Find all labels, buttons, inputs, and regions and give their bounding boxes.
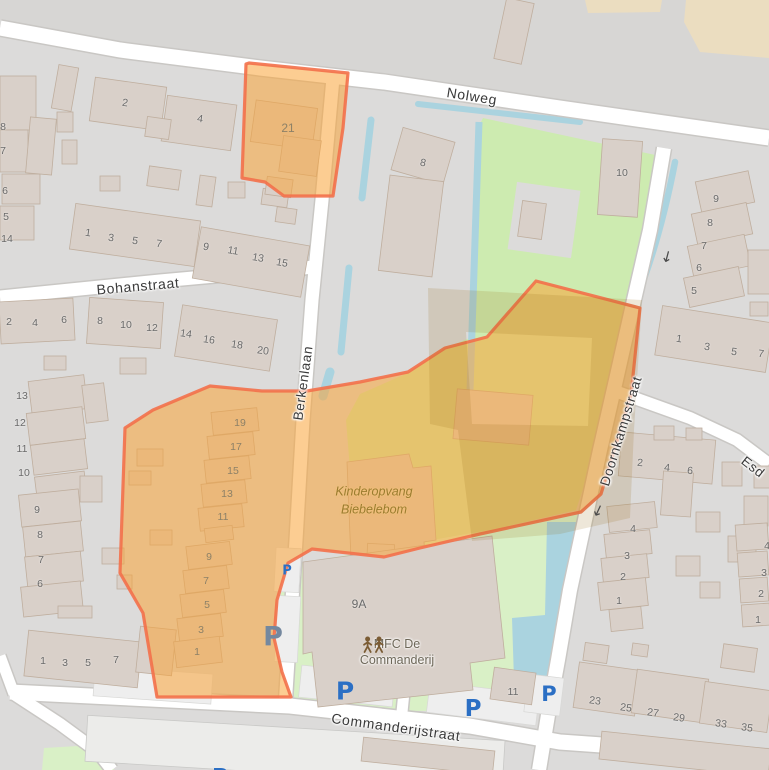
- housenumber-1: 1: [194, 646, 200, 658]
- housenumber-8: 8: [97, 315, 103, 327]
- housenumber-10: 10: [18, 467, 30, 479]
- housenumber-6: 6: [61, 314, 67, 326]
- housenumber-23: 23: [588, 694, 601, 708]
- oneway-arrow-icon: ↓: [659, 247, 676, 268]
- housenumber-4: 4: [630, 523, 636, 535]
- housenumber-1: 1: [675, 333, 682, 346]
- housenumber-6: 6: [2, 185, 8, 197]
- housenumber-11: 11: [508, 686, 519, 698]
- housenumber-15: 15: [275, 256, 289, 270]
- housenumber-8: 8: [37, 529, 43, 541]
- housenumber-5: 5: [131, 235, 138, 248]
- poi-mfc-line2: Commanderij: [360, 652, 434, 668]
- housenumber-16: 16: [202, 333, 215, 347]
- housenumber-20: 20: [256, 344, 269, 358]
- street-label-bohanstraat: Bohanstraat: [96, 274, 180, 297]
- housenumber-5: 5: [3, 211, 9, 223]
- parking-icon: P: [212, 766, 228, 770]
- housenumber-5: 5: [730, 346, 737, 359]
- housenumber-29: 29: [672, 711, 685, 725]
- housenumber-7: 7: [38, 554, 44, 566]
- poi-kinderopvang-line1: Kinderopvang: [335, 484, 412, 502]
- housenumber-2: 2: [620, 571, 626, 583]
- parking-icon: P: [282, 564, 292, 579]
- poi-kinderopvang-line2: Biebelebom: [335, 501, 412, 519]
- housenumber-12: 12: [14, 417, 26, 429]
- housenumber-4: 4: [664, 462, 671, 474]
- housenumber-3: 3: [703, 341, 710, 354]
- housenumber-14: 14: [1, 233, 13, 245]
- housenumber-3: 3: [107, 232, 114, 245]
- housenumber-1: 1: [84, 227, 91, 240]
- housenumber-3: 3: [624, 550, 630, 562]
- housenumber-8: 8: [0, 121, 6, 133]
- housenumber-1: 1: [755, 614, 761, 626]
- labels-layer: Kinderopvang Biebelebom MFC De Commander…: [0, 0, 769, 770]
- housenumber-9A: 9A: [352, 597, 367, 611]
- housenumber-2: 2: [6, 316, 12, 328]
- housenumber-10: 10: [616, 167, 628, 179]
- housenumber-10: 10: [120, 319, 132, 331]
- housenumber-7: 7: [113, 654, 119, 666]
- street-label-berkenlaan: Berkenlaan: [290, 345, 315, 422]
- housenumber-1: 1: [616, 595, 622, 607]
- housenumber-25: 25: [619, 701, 632, 715]
- housenumber-4: 4: [764, 540, 769, 552]
- housenumber-7: 7: [701, 240, 707, 252]
- housenumber-12: 12: [146, 322, 158, 334]
- housenumber-4: 4: [196, 113, 203, 126]
- map-canvas[interactable]: Kinderopvang Biebelebom MFC De Commander…: [0, 0, 769, 770]
- housenumber-8: 8: [419, 157, 427, 170]
- housenumber-6: 6: [687, 465, 694, 477]
- housenumber-4: 4: [32, 317, 38, 329]
- housenumber-2: 2: [121, 97, 128, 110]
- housenumber-7: 7: [155, 238, 162, 251]
- housenumber-8: 8: [707, 217, 713, 229]
- housenumber-7: 7: [203, 575, 209, 587]
- poi-label-kinderopvang: Kinderopvang Biebelebom: [335, 484, 412, 519]
- housenumber-3: 3: [198, 624, 204, 636]
- housenumber-9: 9: [206, 551, 212, 563]
- housenumber-5: 5: [691, 285, 697, 297]
- housenumber-3: 3: [761, 567, 767, 579]
- housenumber-11: 11: [17, 443, 28, 455]
- housenumber-7: 7: [757, 348, 764, 361]
- housenumber-19: 19: [234, 417, 246, 429]
- housenumber-11: 11: [227, 244, 240, 258]
- housenumber-2: 2: [758, 588, 764, 600]
- parking-icon: P: [336, 677, 354, 706]
- housenumber-18: 18: [230, 338, 243, 352]
- housenumber-6: 6: [37, 578, 43, 590]
- housenumber-2: 2: [637, 457, 644, 469]
- parking-icon: P: [465, 696, 482, 722]
- housenumber-9: 9: [34, 504, 40, 516]
- housenumber-5: 5: [204, 599, 210, 611]
- housenumber-17: 17: [230, 441, 242, 453]
- street-label-nolweg: Nolweg: [446, 84, 499, 108]
- housenumber-11: 11: [218, 511, 229, 523]
- parking-icon: P: [263, 622, 283, 653]
- housenumber-14: 14: [179, 327, 192, 341]
- street-label-doornkampstraat: Doornkampstraat: [597, 374, 645, 487]
- housenumber-21: 21: [281, 121, 294, 135]
- housenumber-13: 13: [221, 488, 233, 500]
- street-label-commanderijstraat: Commanderijstraat: [330, 710, 461, 744]
- housenumber-6: 6: [696, 262, 702, 274]
- housenumber-9: 9: [202, 241, 210, 254]
- housenumber-5: 5: [85, 657, 91, 669]
- community-centre-icon: [360, 636, 387, 654]
- housenumber-3: 3: [62, 657, 68, 669]
- housenumber-33: 33: [714, 717, 727, 731]
- housenumber-27: 27: [646, 706, 659, 720]
- housenumber-1: 1: [40, 655, 46, 667]
- housenumber-35: 35: [740, 721, 753, 735]
- housenumber-15: 15: [227, 465, 239, 477]
- poi-label-mfc: MFC De Commanderij: [360, 636, 434, 669]
- housenumber-9: 9: [713, 193, 719, 205]
- parking-icon: P: [541, 682, 556, 706]
- oneway-arrow-icon: ↓: [588, 500, 607, 522]
- housenumber-13: 13: [251, 251, 265, 265]
- housenumber-7: 7: [0, 145, 6, 157]
- street-label-esd: Esd: [738, 453, 767, 480]
- housenumber-13: 13: [16, 390, 28, 402]
